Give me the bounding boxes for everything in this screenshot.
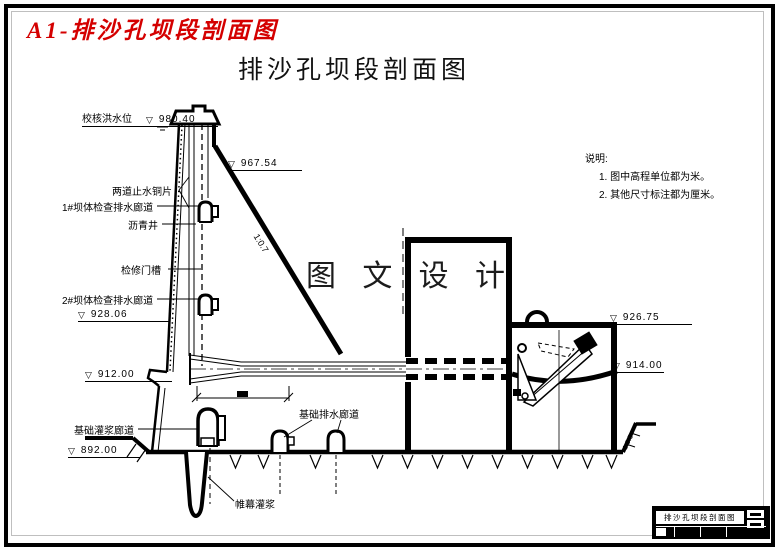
label-gallery-2: 2#坝体检查排水廊道	[62, 292, 153, 307]
elevation-912: ▽ 912.00	[85, 369, 172, 382]
level-marker-icon: ▽	[610, 313, 617, 323]
flushing-conduit	[190, 353, 512, 402]
notes-heading: 说明:	[585, 151, 720, 169]
level-marker-icon: ▽	[613, 361, 620, 371]
foundation-grout-gallery	[198, 409, 225, 446]
notes-block: 说明: 1. 图中高程单位都为米。 2. 其他尺寸标注都为厘米。	[585, 151, 720, 205]
title-block-divider	[700, 526, 701, 537]
water-level-ticks	[157, 127, 168, 130]
title-block-name: 排沙孔坝段剖面图	[656, 511, 744, 524]
hoist-hump	[527, 312, 547, 322]
label-gallery-1: 1#坝体检查排水廊道	[62, 199, 153, 214]
note-item: 2. 其他尺寸标注都为厘米。	[599, 187, 720, 205]
foundation-drain-galleries	[272, 431, 344, 497]
outlet-structure	[512, 312, 617, 452]
page-title: 排沙孔坝段剖面图	[238, 50, 470, 86]
label-foundation-drain: 基础排水廊道	[299, 406, 359, 421]
elevation-check-flood: 校核洪水位 ▽ 980.40	[82, 110, 218, 127]
level-marker-icon: ▽	[68, 446, 75, 456]
label-gate-slot: 检修门槽	[121, 262, 161, 277]
rock-hatch-marks	[230, 455, 617, 468]
elevation-926: ▽ 926.75	[610, 312, 692, 325]
label-copper-seals: 两道止水铜片	[112, 183, 172, 198]
title-block-cell	[747, 510, 764, 518]
downstream-slope-line	[215, 146, 341, 354]
title-block-divider	[726, 526, 727, 537]
title-block-divider	[656, 526, 766, 527]
flood-level-label: 校核洪水位	[82, 110, 132, 125]
title-block: 排沙孔坝段剖面图	[652, 506, 770, 539]
title-block-stamp	[656, 528, 666, 536]
level-marker-icon: ▽	[146, 115, 153, 125]
drawing-sheet: A1-排沙孔坝段剖面图 排沙孔坝段剖面图 图 文 设 计 校核洪水位 ▽ 980…	[0, 0, 776, 548]
note-item: 1. 图中高程单位都为米。	[599, 169, 720, 187]
title-block-divider	[674, 526, 675, 537]
foundation-ground	[85, 423, 656, 468]
level-marker-icon: ▽	[228, 159, 235, 169]
label-curtain-grout: 帷幕灌浆	[235, 496, 275, 511]
elevation-928: ▽ 928.06	[78, 309, 170, 322]
sheet-doc-label: A1-排沙孔坝段剖面图	[27, 11, 279, 45]
watermark-text: 图 文 设 计	[306, 251, 514, 295]
level-marker-icon: ▽	[85, 370, 92, 380]
elevation-892: ▽ 892.00	[68, 445, 140, 458]
label-foundation-grout: 基础灌浆廊道	[74, 422, 134, 437]
elevation-967: ▽ 967.54	[228, 158, 302, 171]
elevation-914: ▽ 914.00	[613, 360, 664, 373]
level-marker-icon: ▽	[78, 310, 85, 320]
label-asphalt-well: 沥青井	[128, 217, 158, 232]
